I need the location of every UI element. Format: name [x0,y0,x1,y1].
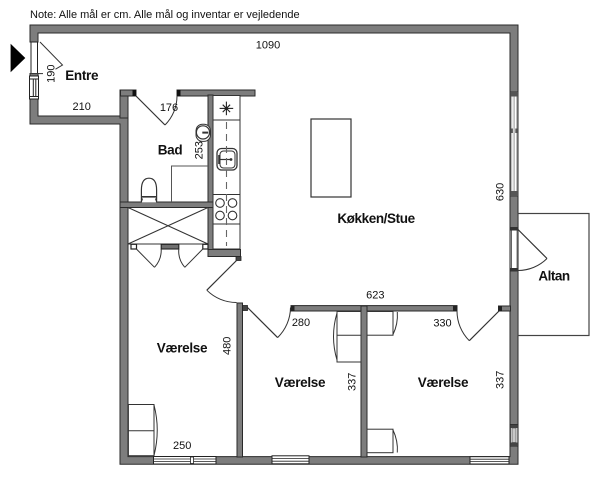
svg-text:250: 250 [173,440,191,452]
svg-text:1090: 1090 [256,40,280,52]
svg-text:480: 480 [222,337,234,355]
svg-text:Værelse: Værelse [157,341,208,356]
svg-text:Værelse: Værelse [418,375,469,390]
svg-text:176: 176 [160,102,178,114]
svg-text:330: 330 [433,318,451,330]
svg-text:337: 337 [495,371,507,389]
svg-text:Bad: Bad [158,143,183,158]
svg-text:Note: Alle mål er cm. Alle mål: Note: Alle mål er cm. Alle mål og invent… [30,9,300,21]
svg-text:Altan: Altan [538,269,570,284]
svg-text:Køkken/Stue: Køkken/Stue [337,211,415,226]
svg-text:210: 210 [73,101,91,113]
svg-text:623: 623 [366,290,384,302]
svg-text:280: 280 [292,317,310,329]
svg-text:337: 337 [347,373,359,391]
svg-text:Entre: Entre [65,68,99,83]
svg-text:253: 253 [193,141,205,159]
svg-text:190: 190 [45,65,57,83]
svg-text:Værelse: Værelse [275,375,326,390]
svg-text:630: 630 [495,183,507,201]
